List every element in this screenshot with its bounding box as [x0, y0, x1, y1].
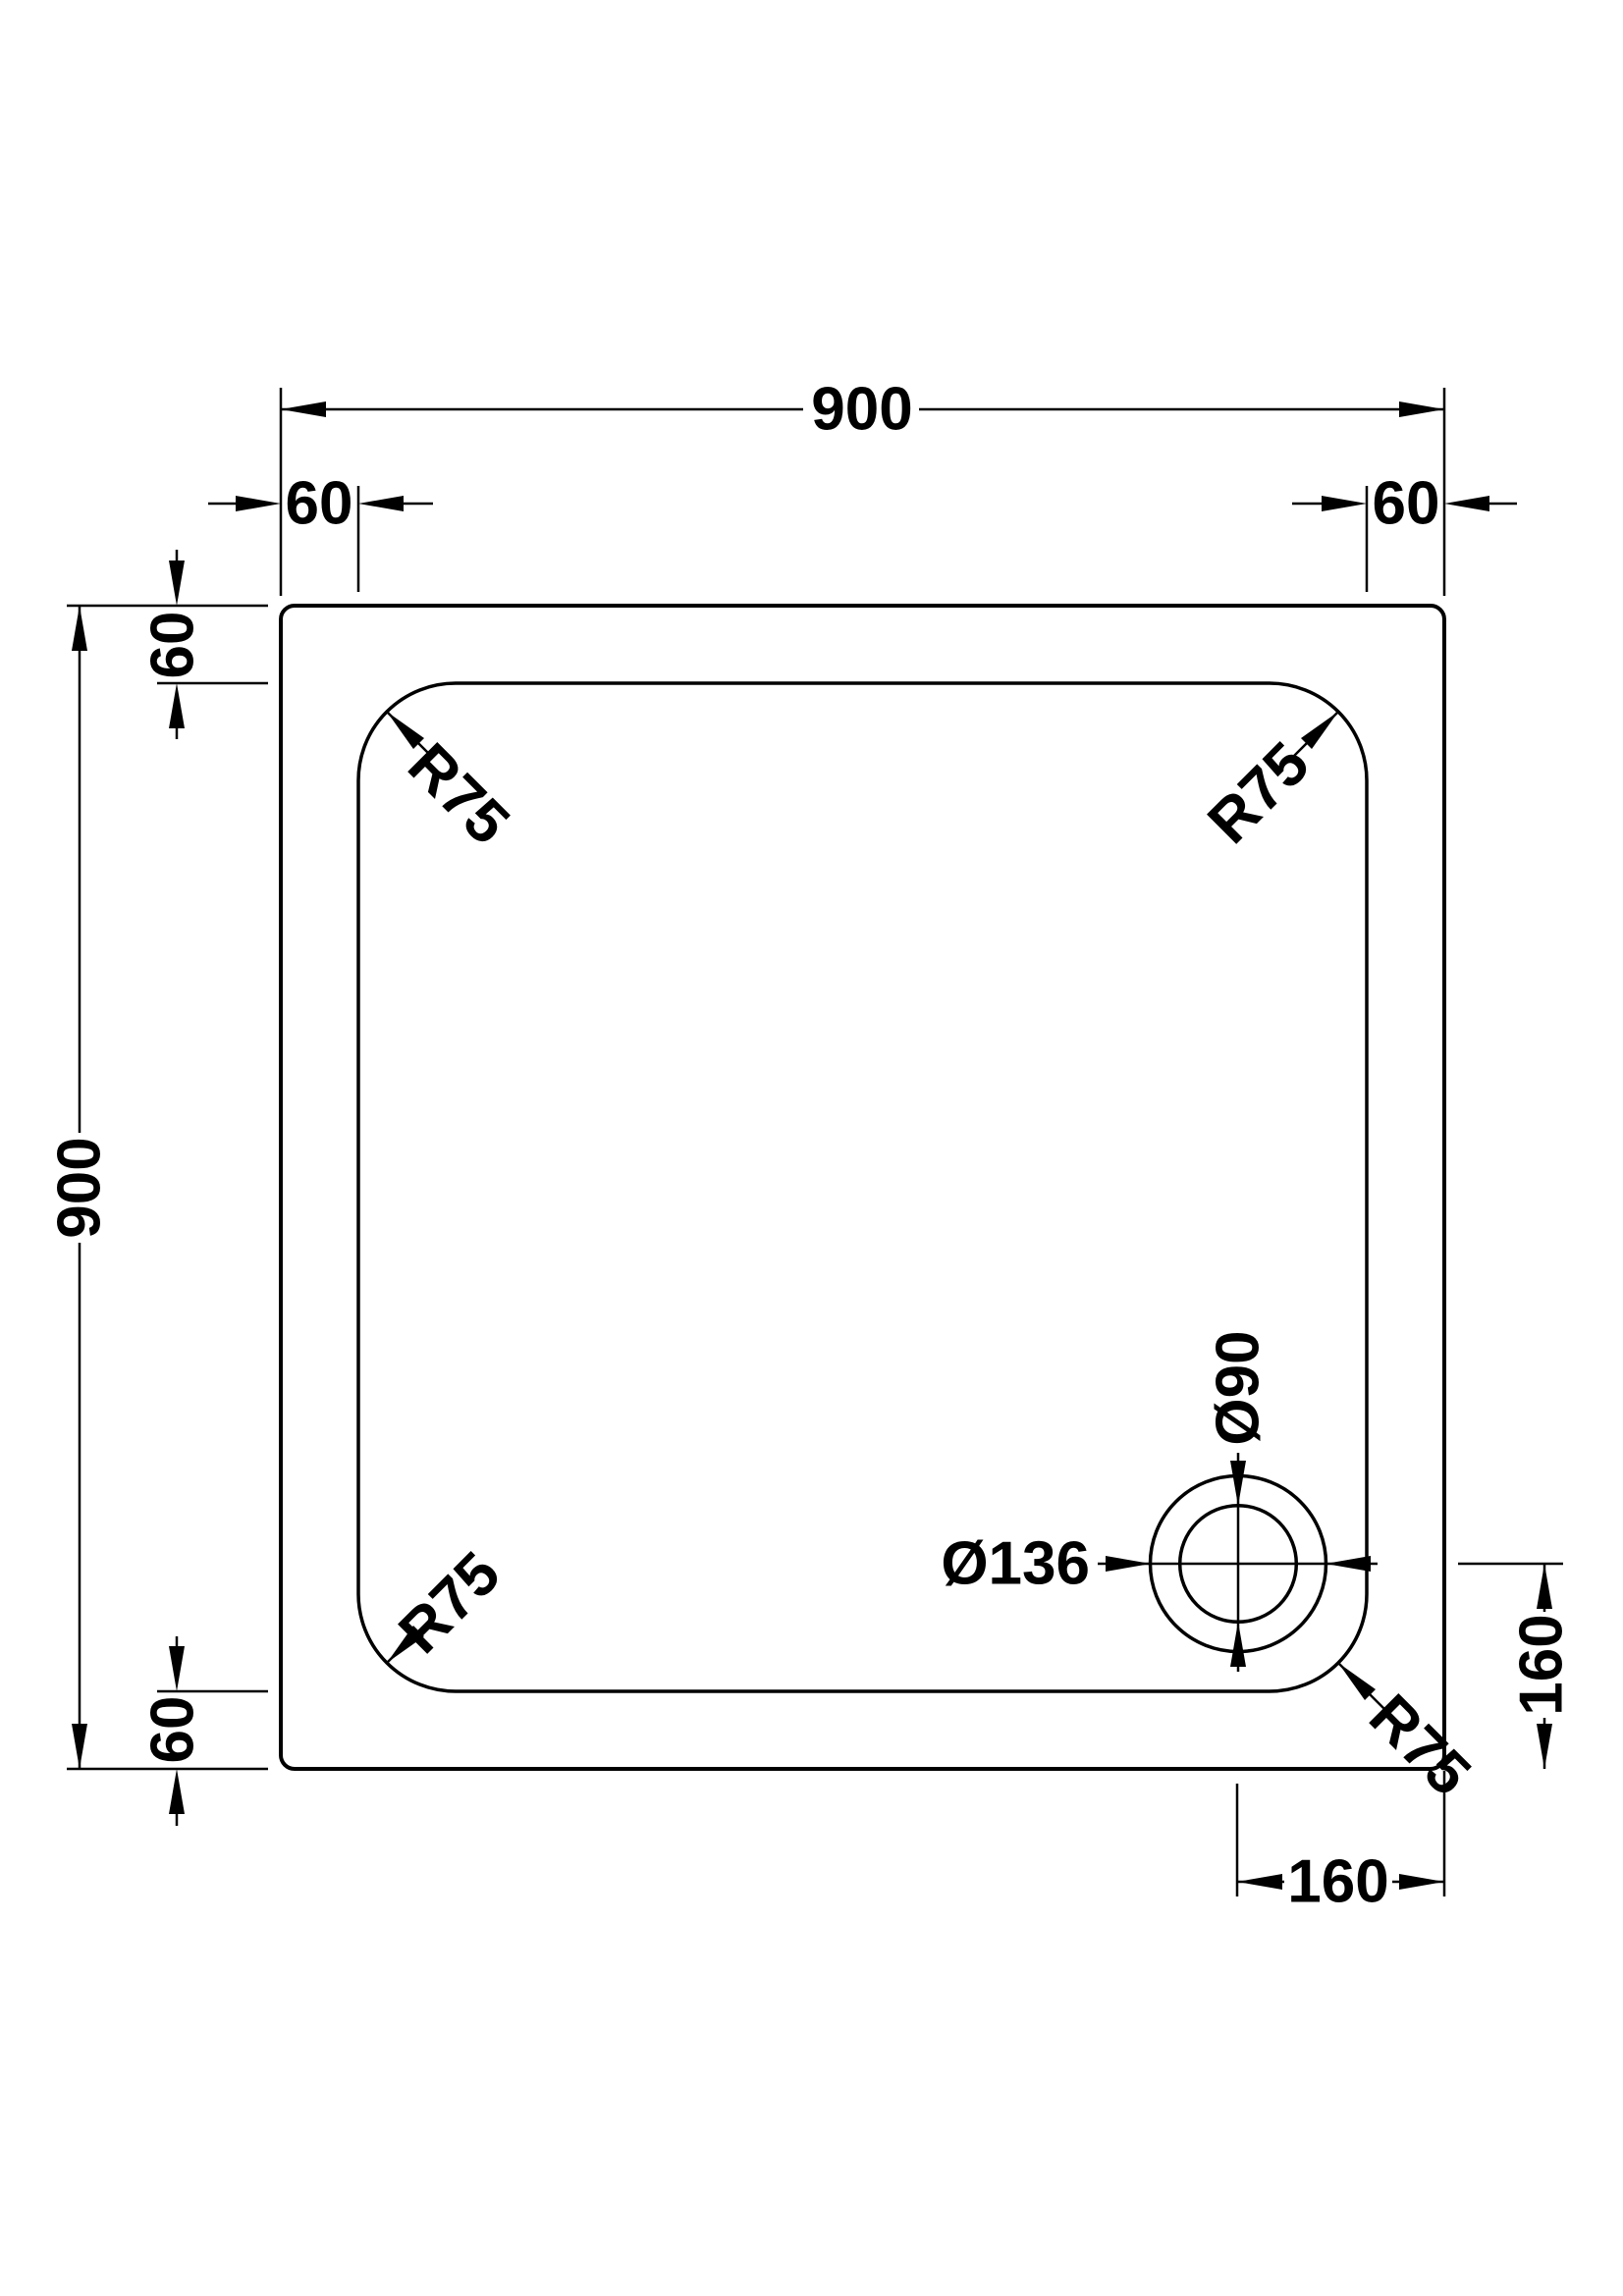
arrowhead-right — [1399, 1874, 1444, 1890]
arrowhead-up — [1230, 1622, 1246, 1667]
arrowhead-right — [1399, 401, 1444, 417]
dim-overall-width: 900 — [281, 376, 1444, 597]
arrowhead-down — [1230, 1461, 1246, 1506]
dim-corner-radius-bottom-right: R75 — [1338, 1663, 1484, 1809]
arrowhead-up — [1537, 1564, 1552, 1609]
arrowhead-down — [169, 561, 185, 606]
arrowhead-nw — [387, 712, 424, 749]
dim-corner-radius-top-right: R75 — [1195, 712, 1338, 857]
dim-corner-radius-top-left: R75 — [387, 712, 522, 858]
arrowhead-left — [1325, 1556, 1371, 1572]
dim-label-top-inset-left: 60 — [286, 470, 353, 538]
shower-tray-technical-drawing: 900 900 60 60 60 — [0, 0, 1623, 2296]
arrowhead-nw — [1338, 1663, 1376, 1700]
dim-label-drain-offset-bottom: 160 — [1287, 1848, 1388, 1916]
dim-left-inset-top: 60 — [139, 550, 269, 739]
arrowhead-down — [169, 1646, 185, 1691]
dim-label-corner-radius-top-right: R75 — [1195, 729, 1322, 856]
dim-label-overall-width: 900 — [811, 376, 912, 444]
arrowhead-right — [1322, 496, 1367, 511]
dim-drain-offset-right-side: 160 — [1458, 1564, 1576, 1769]
dim-label-corner-radius-top-left: R75 — [395, 730, 521, 857]
arrowhead-left — [281, 401, 326, 417]
arrowhead-left — [358, 496, 404, 511]
dim-drain-inner-diameter: Ø90 — [1205, 1330, 1272, 1672]
dim-drain-outer-diameter: Ø136 — [941, 1530, 1378, 1598]
dim-drain-offset-bottom-side: 160 — [1237, 1771, 1444, 1916]
dim-label-drain-outer-diameter: Ø136 — [941, 1530, 1090, 1598]
dim-label-drain-offset-right: 160 — [1508, 1614, 1576, 1715]
drawing-svg: 900 900 60 60 60 — [0, 0, 1623, 2296]
dim-overall-height: 900 — [46, 606, 269, 1769]
arrowhead-right — [236, 496, 281, 511]
arrowhead-left — [1237, 1874, 1282, 1890]
tray-inner-base-edge — [358, 683, 1367, 1691]
dim-label-drain-inner-diameter: Ø90 — [1205, 1330, 1272, 1445]
arrowhead-up — [169, 683, 185, 728]
arrowhead-down — [72, 1724, 87, 1769]
dim-top-inset-right: 60 — [1292, 470, 1517, 593]
arrowhead-up — [169, 1769, 185, 1814]
dim-left-inset-bottom: 60 — [139, 1636, 269, 1826]
arrowhead-up — [72, 606, 87, 651]
arrowhead-left — [1444, 496, 1489, 511]
arrowhead-down — [1537, 1724, 1552, 1769]
dim-label-overall-height: 900 — [46, 1137, 114, 1238]
dim-top-inset-left: 60 — [208, 470, 433, 593]
arrowhead-right — [1106, 1556, 1151, 1572]
dim-label-top-inset-right: 60 — [1373, 470, 1440, 538]
dim-corner-radius-bottom-left: R75 — [386, 1539, 513, 1666]
arrowhead-ne — [1301, 712, 1338, 749]
dim-label-left-inset-top: 60 — [139, 612, 207, 679]
dim-label-left-inset-bottom: 60 — [139, 1696, 207, 1764]
